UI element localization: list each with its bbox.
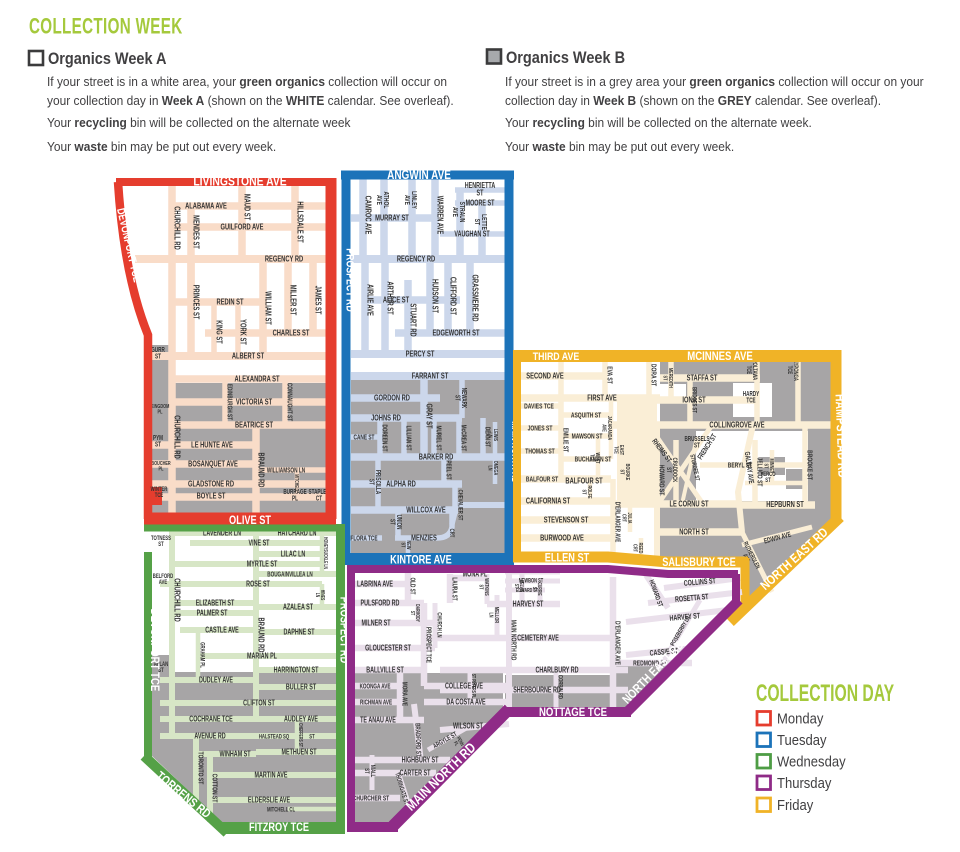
svg-text:CHURCH LN: CHURCH LN	[435, 612, 442, 637]
svg-text:MCINNES AVE: MCINNES AVE	[687, 350, 753, 363]
svg-text:Wednesday: Wednesday	[777, 754, 846, 770]
svg-text:EDGEWORTH ST: EDGEWORTH ST	[432, 327, 480, 338]
svg-text:Thursday: Thursday	[777, 775, 831, 791]
svg-text:WARREN AVE: WARREN AVE	[435, 196, 446, 235]
svg-text:REGENCY RD: REGENCY RD	[397, 253, 435, 264]
svg-text:If your street is in a white a: If your street is in a white area, your …	[47, 74, 447, 89]
svg-text:LE HUNTE AVE: LE HUNTE AVE	[191, 439, 233, 450]
svg-text:ELLEN ST: ELLEN ST	[545, 553, 590, 565]
svg-text:D'ERLANGER AVE: D'ERLANGER AVE	[613, 621, 621, 665]
svg-text:HOWARD ST: HOWARD ST	[657, 465, 665, 496]
svg-text:MENDES ST: MENDES ST	[191, 215, 202, 249]
svg-text:ALABAMA AVE: ALABAMA AVE	[185, 200, 227, 211]
svg-text:PRINCES ST: PRINCES ST	[191, 285, 202, 320]
svg-text:collection day in Week B (show: collection day in Week B (shown on the G…	[505, 93, 881, 108]
svg-text:GRAHAM PL: GRAHAM PL	[198, 642, 205, 668]
svg-text:LABRINA AVE: LABRINA AVE	[357, 581, 393, 589]
svg-text:METHUEN ST: METHUEN ST	[281, 749, 317, 757]
svg-text:HONEYSUCKLE LN: HONEYSUCKLE LN	[323, 537, 329, 569]
svg-text:GRAY ST: GRAY ST	[424, 403, 435, 428]
svg-text:Your waste bin may be put out: Your waste bin may be put out every week…	[505, 139, 734, 154]
svg-text:CHURCHER ST: CHURCHER ST	[353, 795, 390, 803]
svg-text:Your recycling bin will be col: Your recycling bin will be collected on …	[47, 115, 351, 130]
svg-text:NORTH ST: NORTH ST	[679, 526, 709, 537]
svg-text:DA COSTA AVE: DA COSTA AVE	[446, 699, 486, 707]
svg-text:Your recycling bin will be col: Your recycling bin will be collected on …	[505, 115, 812, 130]
svg-text:Organics Week B: Organics Week B	[506, 49, 625, 67]
svg-text:THOMAS ST: THOMAS ST	[525, 448, 555, 456]
svg-text:McCREA ST: McCREA ST	[459, 425, 466, 452]
svg-text:LIVINGSTONE AVE: LIVINGSTONE AVE	[193, 174, 287, 188]
svg-text:MAUD ST: MAUD ST	[242, 194, 253, 221]
svg-text:your collection day in Week A: your collection day in Week A (shown on …	[47, 93, 454, 108]
svg-text:BRIDGES ST: BRIDGES ST	[690, 387, 697, 413]
svg-text:CALIFORNIA ST: CALIFORNIA ST	[526, 495, 571, 506]
svg-text:GORDON RD: GORDON RD	[374, 392, 410, 403]
svg-text:LE CORNU ST: LE CORNU ST	[669, 498, 709, 509]
svg-text:DAVIES TCE: DAVIES TCE	[524, 403, 554, 411]
svg-text:BALLVILLE ST: BALLVILLE ST	[366, 667, 404, 675]
svg-text:AVENUE RD: AVENUE RD	[194, 733, 225, 741]
svg-text:MORA AVE: MORA AVE	[400, 682, 407, 706]
svg-text:HIGHBURY ST: HIGHBURY ST	[402, 757, 439, 765]
svg-text:AZALEA ST: AZALEA ST	[283, 604, 314, 612]
svg-text:CHARLBURY RD: CHARLBURY RD	[535, 667, 578, 675]
svg-text:FIRST AVE: FIRST AVE	[587, 392, 617, 403]
svg-text:HARVEY ST: HARVEY ST	[513, 601, 544, 609]
svg-text:MITCHELL: MITCHELL	[294, 474, 300, 492]
svg-text:CRT: CRT	[448, 529, 455, 538]
svg-text:SALISBURY TCE: SALISBURY TCE	[662, 557, 736, 569]
svg-text:ALBERT ST: ALBERT ST	[232, 350, 265, 361]
svg-text:COLLECTION DAY: COLLECTION DAY	[756, 681, 895, 707]
svg-text:DOREEN ST: DOREEN ST	[380, 425, 387, 452]
svg-text:CAMROC AVE: CAMROC AVE	[363, 196, 374, 235]
svg-text:DAPHNE ST: DAPHNE ST	[283, 629, 315, 637]
svg-text:PEEL ST: PEEL ST	[444, 460, 451, 479]
svg-text:CHARLES ST: CHARLES ST	[273, 327, 310, 338]
svg-text:SHERBOURNE RD: SHERBOURNE RD	[513, 687, 561, 695]
svg-text:KOONGA AVE: KOONGA AVE	[360, 684, 391, 691]
svg-text:MAIN NORTH RD: MAIN NORTH RD	[509, 620, 517, 661]
svg-text:DUDLEY AVE: DUDLEY AVE	[199, 677, 233, 685]
svg-text:PULSFORD RD: PULSFORD RD	[361, 600, 400, 608]
svg-text:BOYLE ST: BOYLE ST	[197, 490, 226, 501]
svg-text:D'ERLANGER AVE: D'ERLANGER AVE	[613, 502, 620, 543]
svg-text:VICTORIA ST: VICTORIA ST	[236, 396, 273, 407]
svg-text:NOTTAGE TCE: NOTTAGE TCE	[539, 706, 607, 719]
svg-text:Your waste bin may be put out: Your waste bin may be put out every week…	[47, 139, 276, 154]
svg-text:If your street is in a grey ar: If your street is in a grey area your gr…	[505, 74, 924, 89]
svg-text:TORONTO ST: TORONTO ST	[196, 752, 204, 785]
svg-text:EDINBURGH ST: EDINBURGH ST	[225, 384, 232, 420]
svg-text:BOUGAINVILLEA LN: BOUGAINVILLEA LN	[267, 572, 312, 579]
svg-text:ALPHA RD: ALPHA RD	[386, 478, 416, 489]
svg-text:BRAUND RD: BRAUND RD	[256, 453, 267, 488]
svg-text:ST: ST	[309, 734, 315, 741]
svg-text:MENZIES: MENZIES	[411, 532, 437, 543]
svg-text:CHEFFERS ST: CHEFFERS ST	[298, 723, 304, 747]
svg-text:Monday: Monday	[777, 711, 823, 727]
svg-text:SECOND AVE: SECOND AVE	[526, 370, 564, 381]
svg-text:ARTHUR ST: ARTHUR ST	[385, 281, 396, 315]
svg-text:CHURCHILL RD: CHURCHILL RD	[172, 415, 183, 458]
svg-text:CONNAUGHT ST: CONNAUGHT ST	[285, 383, 292, 422]
svg-text:ELIZABETH ST: ELIZABETH ST	[196, 600, 235, 608]
svg-text:COTTON ST: COTTON ST	[210, 774, 218, 803]
svg-text:THIRD AVE: THIRD AVE	[533, 351, 580, 363]
svg-text:LILAC LN: LILAC LN	[281, 551, 306, 559]
svg-text:JOHNS RD: JOHNS RD	[371, 412, 401, 423]
svg-text:JONES ST: JONES ST	[528, 425, 553, 433]
svg-text:MURIEL ST: MURIEL ST	[434, 426, 441, 451]
svg-text:EVA ST: EVA ST	[605, 366, 613, 384]
svg-text:FARRANT ST: FARRANT ST	[412, 370, 449, 381]
svg-text:ALEXANDRA ST: ALEXANDRA ST	[235, 373, 280, 384]
svg-text:FITZROY TCE: FITZROY TCE	[249, 822, 309, 834]
svg-text:STEVENSON ST: STEVENSON ST	[544, 514, 589, 525]
svg-text:WINHAM ST: WINHAM ST	[219, 751, 251, 759]
svg-text:ST PETERS PL: ST PETERS PL	[471, 674, 477, 699]
svg-text:YORK ST: YORK ST	[238, 319, 249, 345]
svg-text:WILLCOX AVE: WILLCOX AVE	[406, 504, 446, 515]
svg-text:LAURA ST: LAURA ST	[450, 577, 457, 600]
svg-text:ROSE ST: ROSE ST	[246, 581, 270, 589]
svg-text:VINE ST: VINE ST	[249, 540, 271, 548]
svg-text:GUILFORD AVE: GUILFORD AVE	[221, 221, 264, 232]
svg-text:AIRLIE AVE: AIRLIE AVE	[365, 284, 376, 316]
svg-text:MARIAN PL: MARIAN PL	[247, 653, 277, 661]
svg-text:BROOKE ST: BROOKE ST	[805, 450, 813, 480]
svg-text:WILLIAM ST: WILLIAM ST	[263, 291, 274, 325]
svg-text:DORA ST: DORA ST	[649, 364, 657, 386]
svg-text:REGENCY RD: REGENCY RD	[265, 253, 303, 264]
svg-text:MITCHELL CL: MITCHELL CL	[267, 807, 296, 814]
svg-text:ELDERSLIE AVE: ELDERSLIE AVE	[248, 797, 291, 805]
svg-text:EASTTCE: EASTTCE	[612, 445, 625, 455]
svg-text:GRASSMERE RD: GRASSMERE RD	[470, 274, 481, 321]
svg-text:CORBIN RD: CORBIN RD	[556, 675, 563, 699]
svg-text:BEATRICE ST: BEATRICE ST	[235, 419, 273, 430]
svg-text:COCHRANE TCE: COCHRANE TCE	[189, 716, 233, 724]
svg-text:PALMER ST: PALMER ST	[197, 610, 228, 618]
svg-text:EMILIE ST: EMILIE ST	[561, 428, 569, 453]
svg-text:ASQUITH ST: ASQUITH ST	[571, 412, 601, 420]
svg-text:PERCY ST: PERCY ST	[406, 348, 435, 359]
svg-text:CEMETERY AVE: CEMETERY AVE	[517, 635, 559, 643]
svg-text:MILLER ST: MILLER ST	[288, 285, 299, 316]
svg-text:CASTLE AVE: CASTLE AVE	[205, 627, 239, 635]
svg-text:BURWOOD AVE: BURWOOD AVE	[540, 532, 584, 543]
svg-text:Tuesday: Tuesday	[777, 732, 827, 748]
svg-text:MOORE ST: MOORE ST	[466, 200, 495, 208]
svg-text:ANGWIN AVE: ANGWIN AVE	[387, 169, 451, 182]
svg-text:FLORA TCE: FLORA TCE	[350, 536, 377, 543]
svg-text:MARTIN AVE: MARTIN AVE	[255, 772, 288, 780]
svg-text:STUART RD: STUART RD	[408, 303, 419, 336]
svg-text:MURRAY ST: MURRAY ST	[375, 212, 409, 223]
svg-text:WILSON ST: WILSON ST	[453, 723, 484, 731]
svg-text:HARRINGTON ST: HARRINGTON ST	[274, 667, 319, 675]
svg-text:TE ANAU AVE: TE ANAU AVE	[360, 717, 396, 725]
svg-text:OLD ST: OLD ST	[408, 578, 415, 595]
svg-text:BRADFORD ST: BRADFORD ST	[413, 723, 421, 757]
svg-text:JELLICO ST: JELLICO ST	[755, 458, 763, 487]
svg-text:MYRTLE ST: MYRTLE ST	[247, 561, 278, 569]
svg-text:LILLIAN ST: LILLIAN ST	[404, 426, 411, 451]
svg-text:HAMPSTEAD RD: HAMPSTEAD RD	[832, 394, 849, 478]
svg-text:CHURCHILL RD: CHURCHILL RD	[172, 206, 183, 249]
svg-text:PROSPECT RD: PROSPECT RD	[343, 248, 355, 312]
svg-text:BALFOUR ST: BALFOUR ST	[565, 475, 603, 486]
svg-text:VAUGHAN ST: VAUGHAN ST	[454, 231, 490, 239]
svg-text:BULLER ST: BULLER ST	[286, 684, 317, 692]
svg-text:HALSTEAD SQ: HALSTEAD SQ	[259, 734, 289, 741]
svg-text:CANE ST: CANE ST	[354, 435, 375, 442]
svg-text:BRAUND RD: BRAUND RD	[256, 618, 267, 653]
svg-text:CHEVALIER ST: CHEVALIER ST	[456, 490, 463, 521]
svg-text:BALFOUR ST: BALFOUR ST	[526, 476, 558, 484]
svg-text:HUDSON ST: HUDSON ST	[430, 279, 441, 313]
svg-text:KINTORE AVE: KINTORE AVE	[390, 555, 452, 567]
svg-text:GLADSTONE RD: GLADSTONE RD	[188, 478, 234, 489]
svg-text:Organics Week A: Organics Week A	[48, 50, 167, 68]
svg-text:Friday: Friday	[777, 797, 813, 813]
svg-text:COLLECTION WEEK: COLLECTION WEEK	[29, 15, 183, 39]
svg-text:CLIFTON ST: CLIFTON ST	[243, 700, 275, 708]
svg-text:PROSPECT TCE: PROSPECT TCE	[424, 627, 431, 663]
svg-text:REDIN ST: REDIN ST	[217, 296, 244, 307]
svg-text:RICHMAN AVE: RICHMAN AVE	[360, 700, 392, 707]
svg-text:MAWSON ST: MAWSON ST	[572, 433, 603, 441]
svg-text:GLOUCESTER ST: GLOUCESTER ST	[365, 645, 411, 653]
svg-text:CLIFFORD ST: CLIFFORD ST	[448, 277, 459, 316]
svg-text:JAMES ST: JAMES ST	[313, 286, 324, 315]
svg-text:KING ST: KING ST	[214, 320, 225, 344]
svg-text:BOSANQUET AVE: BOSANQUET AVE	[188, 458, 238, 469]
svg-text:COLLINGROVE AVE: COLLINGROVE AVE	[709, 419, 764, 430]
svg-text:STAFFA ST: STAFFA ST	[687, 372, 718, 383]
svg-text:CHURCHILL RD: CHURCHILL RD	[172, 578, 183, 621]
svg-text:HEPBURN ST: HEPBURN ST	[766, 499, 804, 510]
svg-text:MILNER ST: MILNER ST	[361, 620, 391, 628]
svg-text:HILLSDALE ST: HILLSDALE ST	[295, 201, 306, 243]
svg-text:CARTER ST: CARTER ST	[400, 770, 431, 778]
svg-text:DEVONPORT TCE: DEVONPORT TCE	[148, 609, 161, 692]
